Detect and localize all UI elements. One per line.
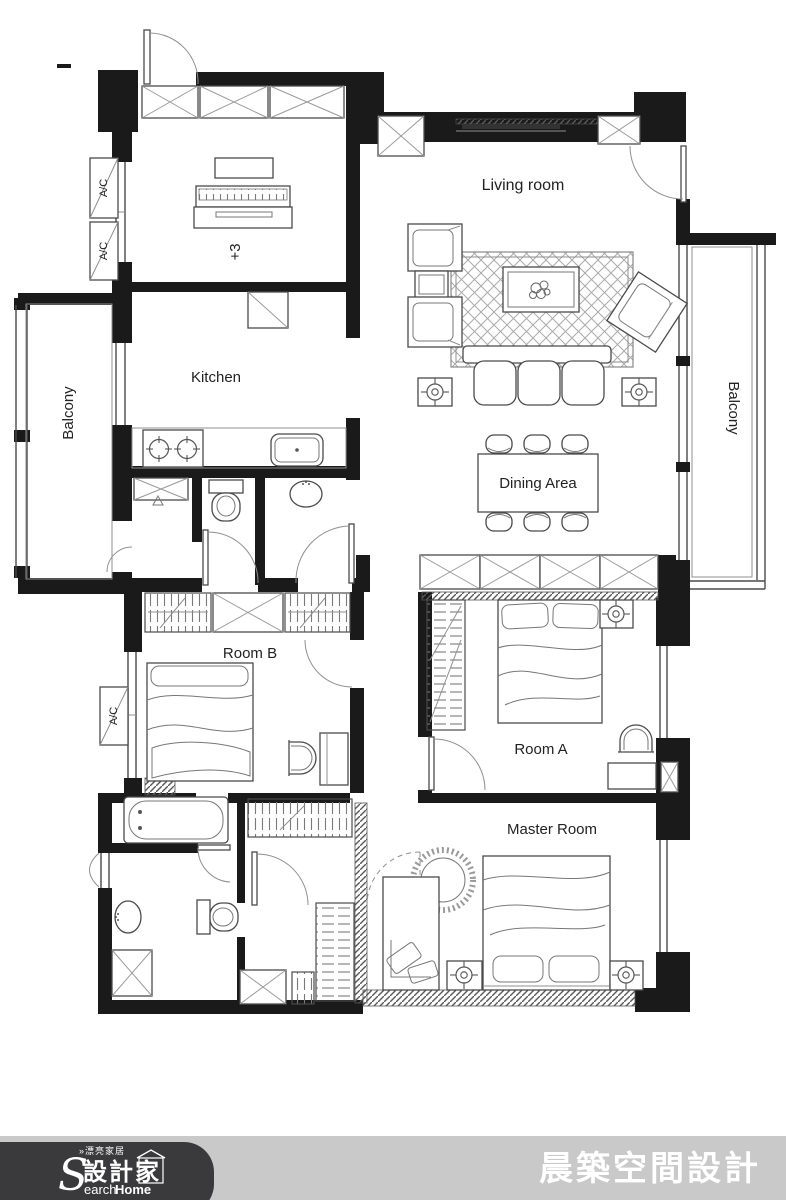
closet-rack-small xyxy=(292,972,314,1004)
kitchen-sink xyxy=(271,434,323,466)
entrance-door xyxy=(144,30,198,84)
sofa xyxy=(463,346,611,405)
ac-unit-3: A/C xyxy=(100,687,128,745)
label-dining-area: Dining Area xyxy=(499,475,577,492)
master-bath-fixtures xyxy=(115,797,238,934)
balcony-left-frame xyxy=(26,304,112,579)
label-master-room: Master Room xyxy=(507,821,597,838)
walls xyxy=(14,64,776,1014)
tv xyxy=(462,124,560,129)
ac-unit-1: A/C xyxy=(90,158,118,218)
fridge-box xyxy=(248,292,288,328)
desk-b xyxy=(320,733,348,785)
side-table-small xyxy=(415,271,448,298)
coffee-table xyxy=(503,267,579,312)
bed-a xyxy=(498,600,602,723)
label-balcony-right: Balcony xyxy=(725,381,742,435)
armchair-2 xyxy=(408,297,462,347)
room-a-door xyxy=(429,737,485,790)
wardrobe-b xyxy=(145,593,350,632)
closet-door xyxy=(252,852,308,905)
master-bed xyxy=(483,856,610,990)
side-table-left xyxy=(418,378,452,406)
company-name: 晨築空間設計 xyxy=(539,1150,761,1188)
floor-plan-page: A/C A/C A/C Living room Kitchen Dining A… xyxy=(0,0,786,1200)
bath-door-1 xyxy=(203,530,258,585)
basin-m xyxy=(115,901,141,933)
label-room-b: Room B xyxy=(223,645,277,662)
chair-b xyxy=(289,740,316,776)
bath-inner-door xyxy=(198,845,230,882)
floor-plan-image: A/C A/C A/C Living room Kitchen Dining A… xyxy=(0,0,786,1200)
ac-label: A/C xyxy=(98,242,110,260)
study-room-furniture xyxy=(194,158,292,228)
kitchen-balcony-door xyxy=(107,547,132,572)
room-a-window xyxy=(660,646,667,738)
closet-shelves xyxy=(316,903,354,1001)
living-balcony-window xyxy=(676,245,690,560)
bath-door-2 xyxy=(296,524,354,583)
closet-rack-top xyxy=(248,799,352,837)
desk-a xyxy=(608,763,656,789)
basin xyxy=(290,481,322,507)
chair-a xyxy=(618,725,654,752)
master-room-furniture xyxy=(383,850,643,990)
label-floor-level: +3 xyxy=(227,243,244,260)
label-living-room: Living room xyxy=(482,177,565,194)
logo-brand-bold: Home xyxy=(115,1182,151,1197)
bathtub xyxy=(124,797,228,843)
master-window xyxy=(660,840,667,952)
kitchen-balcony-window xyxy=(116,343,125,425)
toilet-m xyxy=(197,900,238,934)
bath-window xyxy=(90,853,110,888)
side-table-right xyxy=(622,378,656,406)
footer-bar: »漂亮家居 S 設計家 earch Home 晨築空間設計 xyxy=(0,1136,786,1200)
bed-b xyxy=(147,663,253,781)
wardrobe-a xyxy=(427,600,465,730)
ac-label: A/C xyxy=(108,707,120,725)
nightstand-m1 xyxy=(447,961,482,990)
living-room-furniture xyxy=(408,124,687,406)
armchair-1 xyxy=(408,224,462,271)
room-a-furniture xyxy=(427,600,656,789)
nightstand-a xyxy=(600,600,633,628)
master-desk xyxy=(383,877,439,990)
ac-label: A/C xyxy=(98,179,110,197)
nightstand-m2 xyxy=(610,961,643,990)
logo-brand-rest: earch xyxy=(84,1182,117,1197)
living-balcony-door xyxy=(630,146,686,202)
toilet xyxy=(209,480,243,521)
room-b-window xyxy=(128,652,136,778)
stove xyxy=(143,430,203,467)
label-balcony-left: Balcony xyxy=(60,386,77,440)
ac-unit-2: A/C xyxy=(90,222,118,280)
room-b-furniture xyxy=(145,593,350,785)
kitchen-fixtures xyxy=(132,428,346,468)
label-room-a: Room A xyxy=(514,741,567,758)
room-b-door xyxy=(305,640,352,687)
label-kitchen: Kitchen xyxy=(191,369,241,386)
